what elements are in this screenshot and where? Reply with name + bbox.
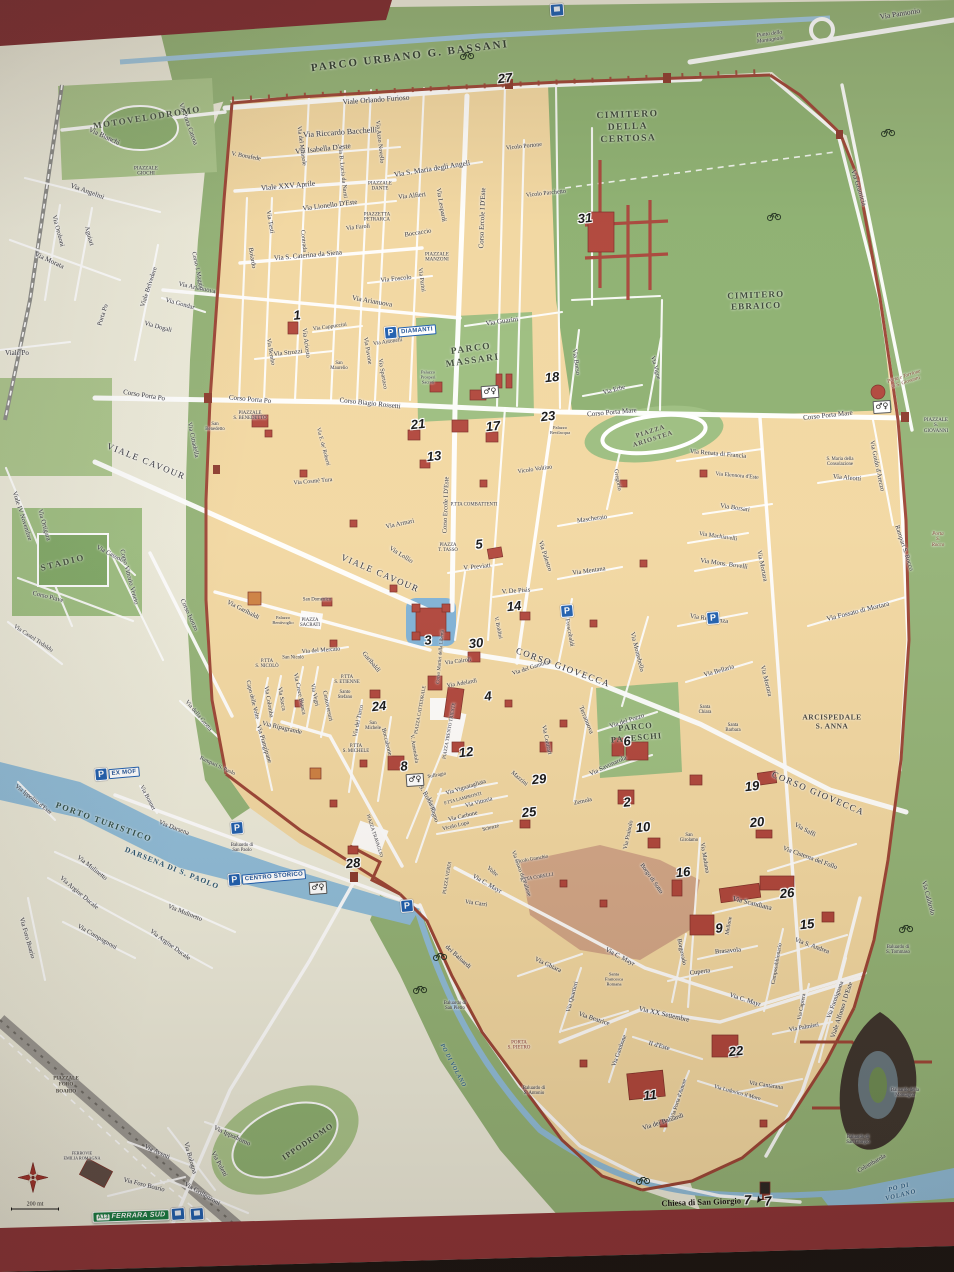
street-label: Baluardo di San Giorgio <box>846 1135 869 1145</box>
chiesa-san-giorgio-label: Chiesa di San Giorgio <box>661 1195 741 1208</box>
street-label: Via della Grotta <box>183 699 213 732</box>
map-marker-7-label: 7 <box>744 1192 752 1207</box>
street-label: Palazzo Bentivoglio <box>272 616 293 626</box>
street-label: Via Caldirolo <box>920 880 936 916</box>
street-label: Via Oroboni <box>50 214 65 247</box>
street-label: Via Renata di Francia <box>690 448 747 460</box>
street-label: Punta della Montagnola <box>756 30 784 46</box>
map-marker-11: 11 <box>643 1087 658 1103</box>
labels-overlay: Via Riccardo BacchelliViale Orlando Furi… <box>0 0 954 1272</box>
street-label: Corso Isonzo <box>179 598 200 632</box>
street-label: Via E. de' Roberti <box>314 427 330 466</box>
street-label: Corso Porta Po <box>122 389 165 403</box>
street-label: Via C. Mayr <box>604 946 636 967</box>
area-label: ARCISPEDALE S. ANNA <box>802 713 861 732</box>
street-label: Baluardo della Montagna <box>891 1088 919 1098</box>
street-label: Via Adelardi <box>446 678 477 690</box>
street-label: PIAZZETTA PETRARCA <box>364 213 391 224</box>
parking-icon: P <box>230 821 244 835</box>
street-label: PIAZZALE GIOCHI <box>134 167 158 178</box>
street-label: Camposabbionario <box>771 943 784 985</box>
map-marker-8: 8 <box>400 758 409 774</box>
street-label: Zemola <box>573 797 592 807</box>
street-label: Corso Porta Po <box>229 394 272 405</box>
map-marker-3: 3 <box>424 632 433 648</box>
map-marker-2: 2 <box>623 794 632 810</box>
street-label: Corso Martiri della Libertà <box>436 630 446 684</box>
street-label: Viale Belvedere <box>139 266 159 308</box>
map-marker-12: 12 <box>458 744 474 760</box>
street-label: Viale XXV Aprile <box>261 180 316 193</box>
street-label: V. Boldini <box>492 616 502 639</box>
street-label: PIAZZALE MANZONI <box>425 253 449 264</box>
street-label: Via Ripagrande <box>261 720 302 736</box>
street-label: Viale Orlando Furioso <box>342 94 409 107</box>
sign-pictogram <box>194 1210 200 1215</box>
map-marker-31: 31 <box>577 210 593 226</box>
street-label: Via Mortara <box>755 550 768 582</box>
map-marker-9: 9 <box>715 920 724 936</box>
street-label: Vicolo Voltino <box>517 464 552 475</box>
wc-icon: ♂♀ <box>309 881 328 895</box>
street-label: II d'Este <box>648 1040 671 1052</box>
street-label: Via Borso <box>571 349 582 376</box>
street-label: Vicolo Portone <box>506 142 543 152</box>
street-label: Via Beatrice <box>578 1011 611 1028</box>
street-label: Via Foro Boario <box>18 917 36 960</box>
street-label: Corso Biagio Rossetti <box>339 397 401 411</box>
street-label: Via Gondar <box>165 297 196 312</box>
map-marker-5: 5 <box>475 536 484 552</box>
area-label: PARCO PARESCHI <box>610 719 663 745</box>
parking-label: CENTRO STORICO <box>241 869 306 885</box>
street-label: Rampari S. Rocco <box>893 524 914 571</box>
street-label: Via Leopardi <box>435 188 448 223</box>
street-label: PIAZZA TRAVAGLIO <box>365 814 384 858</box>
street-label: Via Gambone <box>611 1034 628 1067</box>
street-label: PIAZZA SACRATI <box>300 618 320 628</box>
street-label: PIAZZALE S. GIOVANNI <box>924 418 948 434</box>
map-marker-16: 16 <box>675 864 691 880</box>
map-marker-21: 21 <box>410 416 426 432</box>
street-label: Via Mulinetto <box>76 854 109 882</box>
parking-icon: P <box>706 611 720 625</box>
street-label: Via Dogali <box>143 320 172 334</box>
street-label: Via Foro Boario <box>123 1176 166 1193</box>
street-label: Brasavola <box>715 946 742 955</box>
street-label: Via Erbe <box>602 384 626 397</box>
street-label: Vicolo Granchio <box>515 854 549 865</box>
map-marker-25: 25 <box>521 804 537 820</box>
street-label: Via Carri <box>465 899 488 908</box>
street-label: Viale Po <box>5 350 29 358</box>
street-label: Corso Vittorio Veneto <box>118 549 139 606</box>
street-label: Porta Po <box>96 303 110 326</box>
parking-icon: PEX MOF <box>94 765 140 782</box>
street-label: Vicolo Lupa <box>442 821 470 833</box>
street-label: Via S. Andrea <box>794 937 830 956</box>
map-marker-23: 23 <box>540 408 556 424</box>
area-label: PO DI VOLANO <box>437 1043 466 1089</box>
street-label: Via del Turco <box>352 704 365 737</box>
street-label: Via Cosmè Tura <box>293 477 332 487</box>
street-label: Baluardo di S. Antonio <box>523 1086 546 1096</box>
street-label: P.TTA S. MICHELE <box>343 744 369 754</box>
street-label: Via Savonarola <box>588 754 627 777</box>
area-label: PO DI VOLANO <box>872 1178 928 1207</box>
area-label: PIAZZALE FORO BOARIO <box>53 1077 79 1096</box>
street-label: San Benedetto <box>205 422 224 432</box>
street-label: Via Mulinetto <box>167 903 203 923</box>
map-marker-19: 19 <box>744 778 760 794</box>
street-label: Via Bologna <box>182 1141 198 1174</box>
street-label: Via Montebello <box>629 631 646 672</box>
street-label: Via Argine Ducale <box>148 928 191 962</box>
bicycle-icon <box>766 207 783 226</box>
parking-p-icon: P <box>400 899 414 913</box>
street-label: Via Compagnoni <box>76 923 118 951</box>
street-label: Via Vigne <box>649 356 661 381</box>
street-label: Via Guido d'Arezzo <box>868 440 886 492</box>
street-label: Via Argine Ducale <box>58 875 99 911</box>
sign-pictogram <box>175 1210 181 1215</box>
street-label: PIAZZA T. TASSO <box>438 543 458 553</box>
street-label: Santa Chiara <box>699 705 712 715</box>
street-label: Via S. Caterina da Siena <box>274 249 343 262</box>
street-label: San Nicolò <box>282 655 303 660</box>
street-label: Mellone <box>725 916 734 935</box>
street-label: Boccaccio <box>404 227 432 238</box>
bicycle-icon <box>412 980 429 999</box>
street-label: Via C. Mayr <box>471 873 502 895</box>
street-label: Gregorio <box>612 469 622 491</box>
street-label: Via Lollio <box>388 545 414 565</box>
street-label: PIAZZALE S. BENEDETTO <box>233 411 266 421</box>
parking-p-icon: P <box>230 821 244 835</box>
street-label: Via Guarini <box>485 316 519 328</box>
parking-p-icon: P <box>560 604 574 618</box>
street-label: Volte <box>485 865 499 878</box>
street-label: Via Grillenzoni <box>183 1181 221 1207</box>
parking-icon: P <box>560 604 574 618</box>
map-marker-24: 24 <box>371 698 387 714</box>
street-label: Via Borsari <box>720 502 750 513</box>
parking-icon: PCENTRO STORICO <box>227 867 306 887</box>
street-label: Via S. Maria degli Angeli <box>393 159 470 179</box>
street-label: San Girolamo <box>680 833 698 843</box>
street-label: CORSO GIOVECCA <box>770 770 866 818</box>
map-marker-20: 20 <box>749 814 765 830</box>
street-label: Via Pannonio <box>879 7 920 21</box>
street-label: Via Caprera <box>798 993 808 1020</box>
bicycle-icon <box>880 123 897 142</box>
street-label: P.TTA S. ETIENNE <box>334 675 359 685</box>
street-label: Porta e Torrione di S. Giovanni <box>887 369 923 390</box>
road-info-sign <box>550 3 565 17</box>
wc-icon: ♂♀ <box>481 385 500 399</box>
parking-p-icon: P <box>227 873 241 887</box>
street-label: Vicolo Parchetto <box>526 189 567 200</box>
street-label: Via Mortara <box>759 665 773 697</box>
map-marker-30: 30 <box>468 635 484 651</box>
street-label: Via Machiavelli <box>699 531 738 543</box>
street-label: Via Praisolo <box>623 820 635 850</box>
map-marker-18: 18 <box>544 369 560 385</box>
area-label: PORTO TURISTICO <box>54 800 153 845</box>
street-label: Via B. Lucia da Narni <box>336 145 348 198</box>
street-label: Colombarola <box>857 1153 887 1174</box>
map-marker-4: 4 <box>484 688 493 704</box>
sign-pictogram <box>554 6 560 11</box>
street-label: Corso Piave <box>32 590 64 604</box>
map-marker-10: 10 <box>635 819 651 835</box>
street-label: Via Morata <box>33 251 65 271</box>
street-label: Via Angelini <box>69 182 105 201</box>
map-marker-14: 14 <box>506 598 522 614</box>
map-marker-28: 28 <box>345 855 361 871</box>
map-marker-1: 1 <box>293 307 302 323</box>
compass-rose-icon <box>15 1160 51 1201</box>
street-label: Via Riccardo Bacchelli <box>303 126 378 140</box>
street-label: Santa Francesca Romana <box>605 973 623 988</box>
area-label: STADIO <box>39 552 86 574</box>
map-scale: 200 mt <box>11 1202 59 1211</box>
street-label: Via Azzo Novello <box>374 120 385 163</box>
street-label: Via Palmieri <box>789 1022 820 1034</box>
street-label: Via Colomba <box>262 686 274 718</box>
road-info-sign <box>171 1207 186 1221</box>
street-label: Via Croce Bianca <box>291 673 306 716</box>
area-label: PIAZZA ARIOSTEA <box>630 422 675 450</box>
street-label: P.TTA COMBATTENTI <box>450 502 497 507</box>
street-label: Terranuova <box>577 705 595 735</box>
street-label: Via dei Baluardi <box>642 1112 685 1132</box>
parking-p-icon: P <box>94 767 108 781</box>
map-marker-29: 29 <box>531 771 547 787</box>
street-label: PIAZZA VERDI <box>443 862 454 895</box>
street-label: Garibaldi <box>360 650 381 673</box>
street-label: Viale IV Novembre <box>11 491 33 542</box>
street-label: S. Maria della Consolazione <box>826 457 853 467</box>
street-label: Via Eleonora d'Este <box>715 472 759 482</box>
map-marker-6: 6 <box>623 733 632 749</box>
area-label: DARSENA DI S. PAOLO <box>123 845 220 892</box>
map-marker-13: 13 <box>426 448 442 464</box>
street-label: Capo delle Volte <box>244 680 260 720</box>
street-label: Corso Ercole I D'Este <box>478 187 488 248</box>
street-label: PORTA S. PIETRO <box>508 1041 531 1052</box>
street-label: San Maurelio <box>330 361 348 371</box>
map-marker-7: 7 <box>764 1193 773 1209</box>
map-marker-15: 15 <box>799 916 815 932</box>
street-label: Via Saffi <box>793 821 817 838</box>
street-label: Via Pavone <box>361 337 372 365</box>
street-label: Via C. Mayr <box>729 992 762 1009</box>
map-marker-26: 26 <box>779 885 795 901</box>
street-label: Cuperta <box>689 967 710 977</box>
street-label: Via Spartaco <box>376 358 388 389</box>
street-label: FERROVIE EMILIA ROMAGNA <box>63 1151 100 1160</box>
street-label: Via Foscolo <box>380 274 412 284</box>
street-label: San Michele <box>365 721 381 731</box>
area-label: PARCO MASSARI <box>443 340 500 371</box>
street-label: Boccaleone <box>379 728 392 757</box>
street-label: Via Arianuova <box>351 295 392 309</box>
street-label: Centoversuri <box>321 690 334 722</box>
street-label: PIAZZALE DANTE <box>368 182 392 193</box>
bicycle-icon <box>635 1171 652 1190</box>
street-label: Palazzo Bevilacqua <box>550 426 570 436</box>
street-label: P.TTA CORELLI <box>520 873 554 884</box>
street-label: Via Bonnet <box>138 784 156 811</box>
street-label: Corso Porta Mare <box>803 410 853 423</box>
street-label: Suffragio <box>427 772 446 781</box>
street-label: V. Bonafede <box>231 151 261 163</box>
street-label: Via Alfieri <box>398 191 426 201</box>
parking-p-icon: P <box>384 326 398 340</box>
street-label: V. Previati <box>463 562 491 572</box>
ferrara-tourist-map-photo: Via Riccardo BacchelliViale Orlando Furi… <box>0 0 954 1272</box>
street-label: Borgovado <box>675 938 687 965</box>
street-label: Via Ippodromo <box>213 1124 252 1147</box>
motorway-sign-label: FERRARA SUD <box>111 1211 165 1220</box>
street-label: Via Ortigara <box>36 509 52 542</box>
street-label: Via XX Settembre <box>638 1006 690 1025</box>
street-label: Via Antonelli <box>373 338 403 348</box>
street-label: Santo Stefano <box>338 690 353 700</box>
street-label: Via Scandiana <box>732 895 773 912</box>
a13-badge: A13 <box>96 1214 109 1220</box>
wc-icon: ♂♀ <box>406 773 425 787</box>
parking-label: EX MOF <box>108 766 140 779</box>
street-label: San Domenico <box>303 597 331 602</box>
street-label: Via Quartieri <box>566 981 580 1013</box>
bicycle-icon <box>459 46 476 65</box>
street-label: Via Gramicia <box>849 169 868 207</box>
parking-label: DIAMANTI <box>398 324 436 337</box>
street-label: Baluardo di S. Tommaso <box>886 945 910 955</box>
area-label: IPPODROMO <box>280 1121 335 1163</box>
street-label: Mazzini <box>509 770 528 788</box>
street-label: Contrada <box>299 230 308 253</box>
area-label: CIMITERO DELLA CERTOSA <box>596 109 659 147</box>
parking-p-icon: P <box>706 611 720 625</box>
street-label: Santa Barbara <box>725 723 740 733</box>
street-label: Via Cisterna del Follo <box>782 845 838 871</box>
street-label: V. De Pisis <box>501 587 530 596</box>
street-label: Via Cantarana <box>749 1080 784 1091</box>
street-label: dei Baluardi <box>444 944 472 971</box>
street-label: Via Mons. Bovelli <box>700 557 748 571</box>
street-label: Via Darsena <box>158 819 190 837</box>
street-label: Via Strozzi <box>273 348 303 358</box>
bicycle-icon <box>898 919 915 938</box>
road-info-sign <box>190 1207 205 1221</box>
street-label: Via Cittadella <box>186 422 200 459</box>
street-label: Via Madama <box>698 842 710 873</box>
street-label: Via Contrari <box>540 725 553 756</box>
street-label: Palazzo Prosperi Sacrati <box>421 371 436 386</box>
street-label: Via Aleotti <box>833 473 862 482</box>
street-label: Via Poletti <box>209 1150 228 1178</box>
street-label: VIALE CAVOUR <box>105 442 187 483</box>
area-label: CIMITERO EBRAICO <box>727 289 785 313</box>
street-label: Aguiari <box>83 226 95 247</box>
street-label: P.TTA S. NICOLÒ <box>255 659 278 669</box>
street-label: Via Aventi <box>143 1143 171 1161</box>
parking-icon: PDIAMANTI <box>384 322 437 339</box>
street-label: Via Castel Tedaldo <box>12 624 54 654</box>
parking-icon: P <box>400 899 414 913</box>
street-label: Mascheraio <box>576 513 607 524</box>
street-label: PIAZZA TRENTO TRIESTE <box>443 702 458 759</box>
street-label: Porta S. Rocco <box>930 532 946 548</box>
street-label: Via Cairoli <box>444 657 471 667</box>
street-label: Via Piangipane <box>255 724 273 764</box>
map-marker-27: 27 <box>497 70 513 86</box>
street-label: Baluardo di San Pietro <box>444 1001 467 1011</box>
bicycle-icon <box>432 947 449 966</box>
scale-bar <box>11 1208 59 1211</box>
street-label: Via Vegri <box>308 683 319 707</box>
street-label: Via Palestro <box>537 540 553 572</box>
street-label: Scienze <box>482 824 500 834</box>
street-label: Via Faroli <box>346 224 371 233</box>
area-label: PARCO URBANO G. BASSANI <box>310 38 509 76</box>
street-label: Corso Porta Mare <box>587 407 637 419</box>
street-label: Via del Mercato <box>302 646 341 655</box>
street-label: Boiardo <box>247 247 258 269</box>
street-label: Via Lionello D'Este <box>302 199 358 213</box>
wc-icon: ♂♀ <box>873 400 892 414</box>
street-label: Via Mentana <box>572 565 606 577</box>
street-label: Via Bellaria <box>703 663 735 678</box>
street-label: Corso Ercole I D'Este <box>442 477 451 534</box>
street-label: Baluardo di San Paolo <box>231 843 254 853</box>
map-marker-17: 17 <box>485 418 501 434</box>
street-label: Via Armari <box>385 518 415 531</box>
street-label: Via Ippolito d'Este <box>13 784 52 817</box>
map-marker-22: 22 <box>728 1043 744 1059</box>
street-label: Via Ghiara <box>534 956 563 974</box>
street-label: Via Cappuccini <box>313 323 348 334</box>
street-label: Via Testi <box>265 210 276 234</box>
street-label: V. Amendola <box>408 734 419 763</box>
street-label: Via Fossato di Mortara <box>826 601 890 624</box>
street-label: PIAZZA CATTEDRALE <box>414 685 428 734</box>
street-label: Rampari S. Paolo <box>198 756 236 778</box>
street-label: Via Sacca <box>276 687 287 712</box>
street-label: Via Parini <box>416 268 426 293</box>
street-label: Via Garibaldi <box>226 599 261 621</box>
street-label: Borgo di Sotto <box>638 863 664 896</box>
